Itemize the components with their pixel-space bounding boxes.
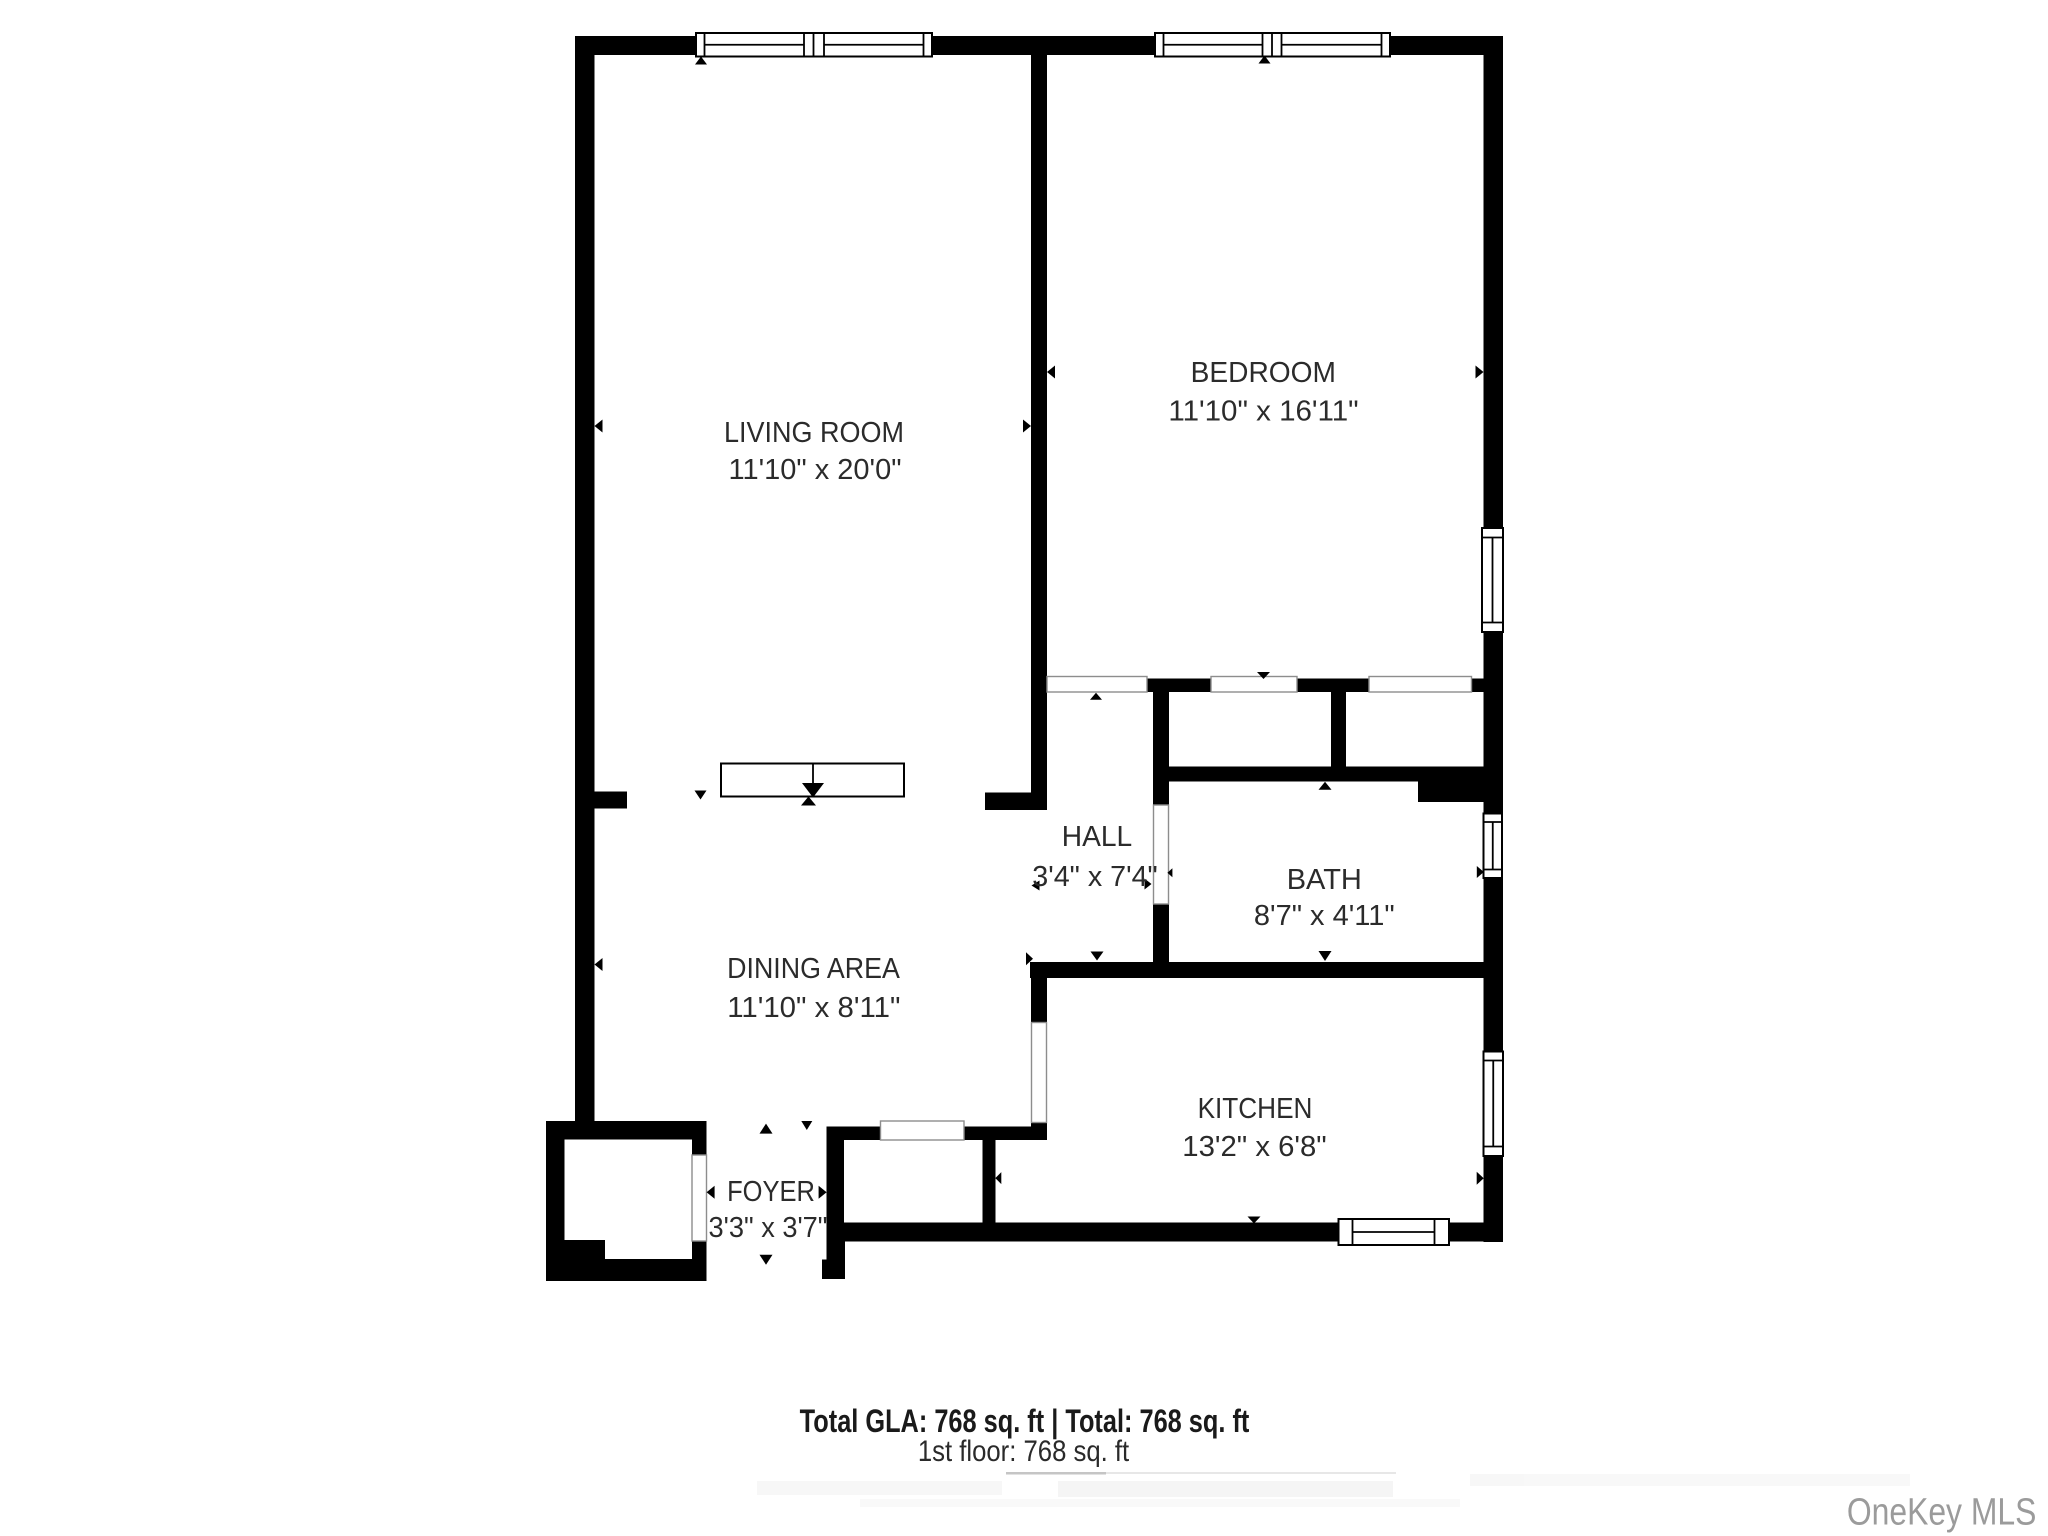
svg-text:OneKey MLS: OneKey MLS bbox=[1847, 1491, 2037, 1533]
svg-text:HALL: HALL bbox=[1062, 821, 1132, 853]
svg-text:3'4" x 7'4": 3'4" x 7'4" bbox=[1032, 861, 1157, 893]
svg-text:LIVING ROOM: LIVING ROOM bbox=[724, 416, 904, 448]
svg-text:3'3" x 3'7": 3'3" x 3'7" bbox=[709, 1211, 828, 1243]
svg-text:DINING AREA: DINING AREA bbox=[727, 952, 900, 984]
svg-text:8'7" x 4'11": 8'7" x 4'11" bbox=[1254, 900, 1395, 932]
svg-text:11'10" x 16'11": 11'10" x 16'11" bbox=[1168, 396, 1358, 428]
svg-text:BEDROOM: BEDROOM bbox=[1191, 357, 1336, 389]
svg-text:FOYER: FOYER bbox=[727, 1174, 815, 1207]
svg-text:13'2" x 6'8": 13'2" x 6'8" bbox=[1182, 1131, 1326, 1163]
svg-text:BATH: BATH bbox=[1287, 864, 1362, 896]
svg-text:11'10" x 8'11": 11'10" x 8'11" bbox=[727, 992, 900, 1024]
svg-text:KITCHEN: KITCHEN bbox=[1198, 1092, 1313, 1125]
svg-text:1st floor: 768 sq. ft: 1st floor: 768 sq. ft bbox=[918, 1434, 1130, 1467]
svg-text:11'10" x 20'0": 11'10" x 20'0" bbox=[728, 454, 901, 486]
